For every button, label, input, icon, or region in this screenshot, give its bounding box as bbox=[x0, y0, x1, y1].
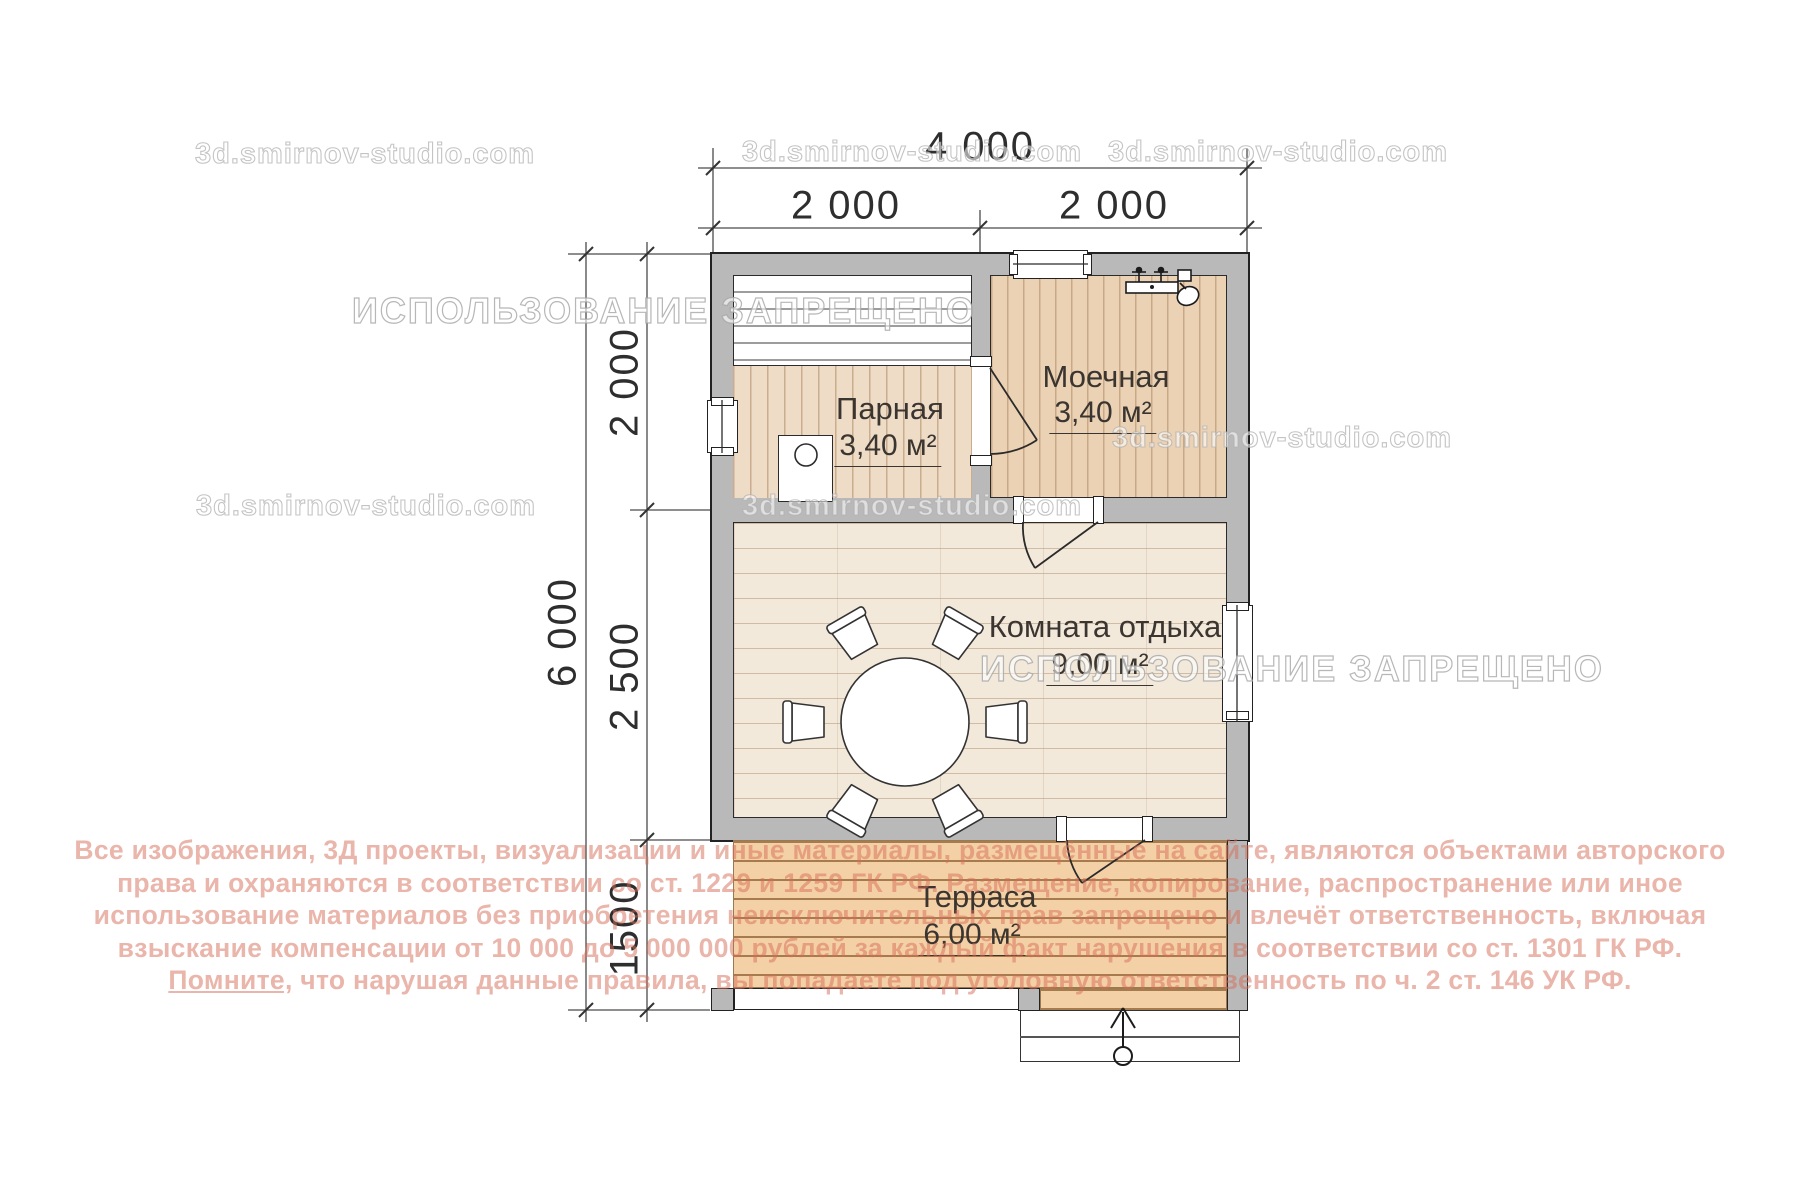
window-jamb bbox=[1083, 254, 1092, 275]
door-opening-parnaya-moechnaya bbox=[972, 358, 990, 464]
door-opening-moechnaya-rest bbox=[1015, 498, 1103, 522]
room-area-rest: 9,00 м² bbox=[1046, 648, 1153, 686]
door-jamb bbox=[970, 356, 992, 367]
copyright-notice: Все изображения, 3Д проекты, визуализаци… bbox=[0, 834, 1800, 997]
sauna-bench bbox=[733, 275, 972, 366]
room-label-parnaya: Парная bbox=[836, 391, 944, 427]
window-jamb bbox=[1226, 711, 1249, 720]
watermark-site: 3d.smirnov-studio.com bbox=[195, 138, 535, 171]
copyright-line: Помните, что нарушая данные правила, вы … bbox=[0, 964, 1800, 997]
door-jamb bbox=[1013, 496, 1024, 524]
room-area-parnaya: 3,40 м² bbox=[834, 429, 941, 467]
dim-total-height: 6 000 bbox=[541, 577, 586, 687]
copyright-line-rest: что нарушая данные правила, вы попадаете… bbox=[293, 965, 1632, 995]
door-jamb bbox=[1093, 496, 1104, 524]
window-rest bbox=[1222, 605, 1253, 722]
dim-total-width: 4 000 bbox=[925, 125, 1035, 170]
dim-top-segment-1: 2 000 bbox=[791, 184, 901, 229]
copyright-line: использование материалов без приобретени… bbox=[0, 899, 1800, 932]
door-jamb bbox=[970, 455, 992, 466]
dim-left-segment-1: 2 000 bbox=[603, 327, 648, 437]
copyright-line: права и охраняются в соответствии со ст.… bbox=[0, 867, 1800, 900]
window-moechnaya bbox=[1013, 250, 1088, 279]
room-area-moechnaya: 3,40 м² bbox=[1049, 396, 1156, 434]
dim-left-segment-2: 2 500 bbox=[603, 621, 648, 731]
window-jamb bbox=[1226, 602, 1249, 611]
entrance-step-edge bbox=[1020, 1036, 1240, 1038]
dim-top-segment-2: 2 000 bbox=[1059, 184, 1169, 229]
room-label-rest: Комната отдыха bbox=[989, 609, 1222, 645]
watermark-site: 3d.smirnov-studio.com bbox=[1108, 136, 1448, 169]
copyright-warning-word: Помните, bbox=[168, 965, 292, 995]
watermark-site: 3d.smirnov-studio.com bbox=[196, 490, 536, 523]
window-jamb bbox=[1009, 254, 1018, 275]
room-label-moechnaya: Моечная bbox=[1043, 359, 1170, 395]
sauna-stove bbox=[778, 435, 833, 502]
window-jamb bbox=[711, 397, 734, 406]
floor-plan-page: 4 000 2 000 2 000 6 000 2 000 2 500 1500… bbox=[0, 0, 1800, 1200]
copyright-line: взыскание компенсации от 10 000 до 5 000… bbox=[0, 932, 1800, 965]
copyright-line: Все изображения, 3Д проекты, визуализаци… bbox=[0, 834, 1800, 867]
window-jamb bbox=[711, 447, 734, 456]
window-parnaya bbox=[707, 400, 738, 453]
